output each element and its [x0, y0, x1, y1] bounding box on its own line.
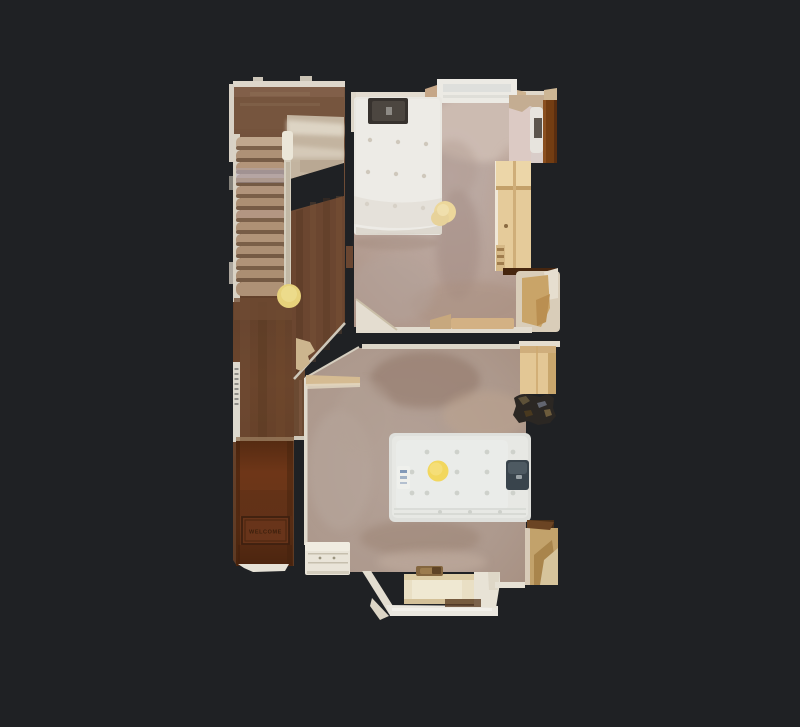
- svg-text:WELCOME: WELCOME: [249, 530, 282, 536]
